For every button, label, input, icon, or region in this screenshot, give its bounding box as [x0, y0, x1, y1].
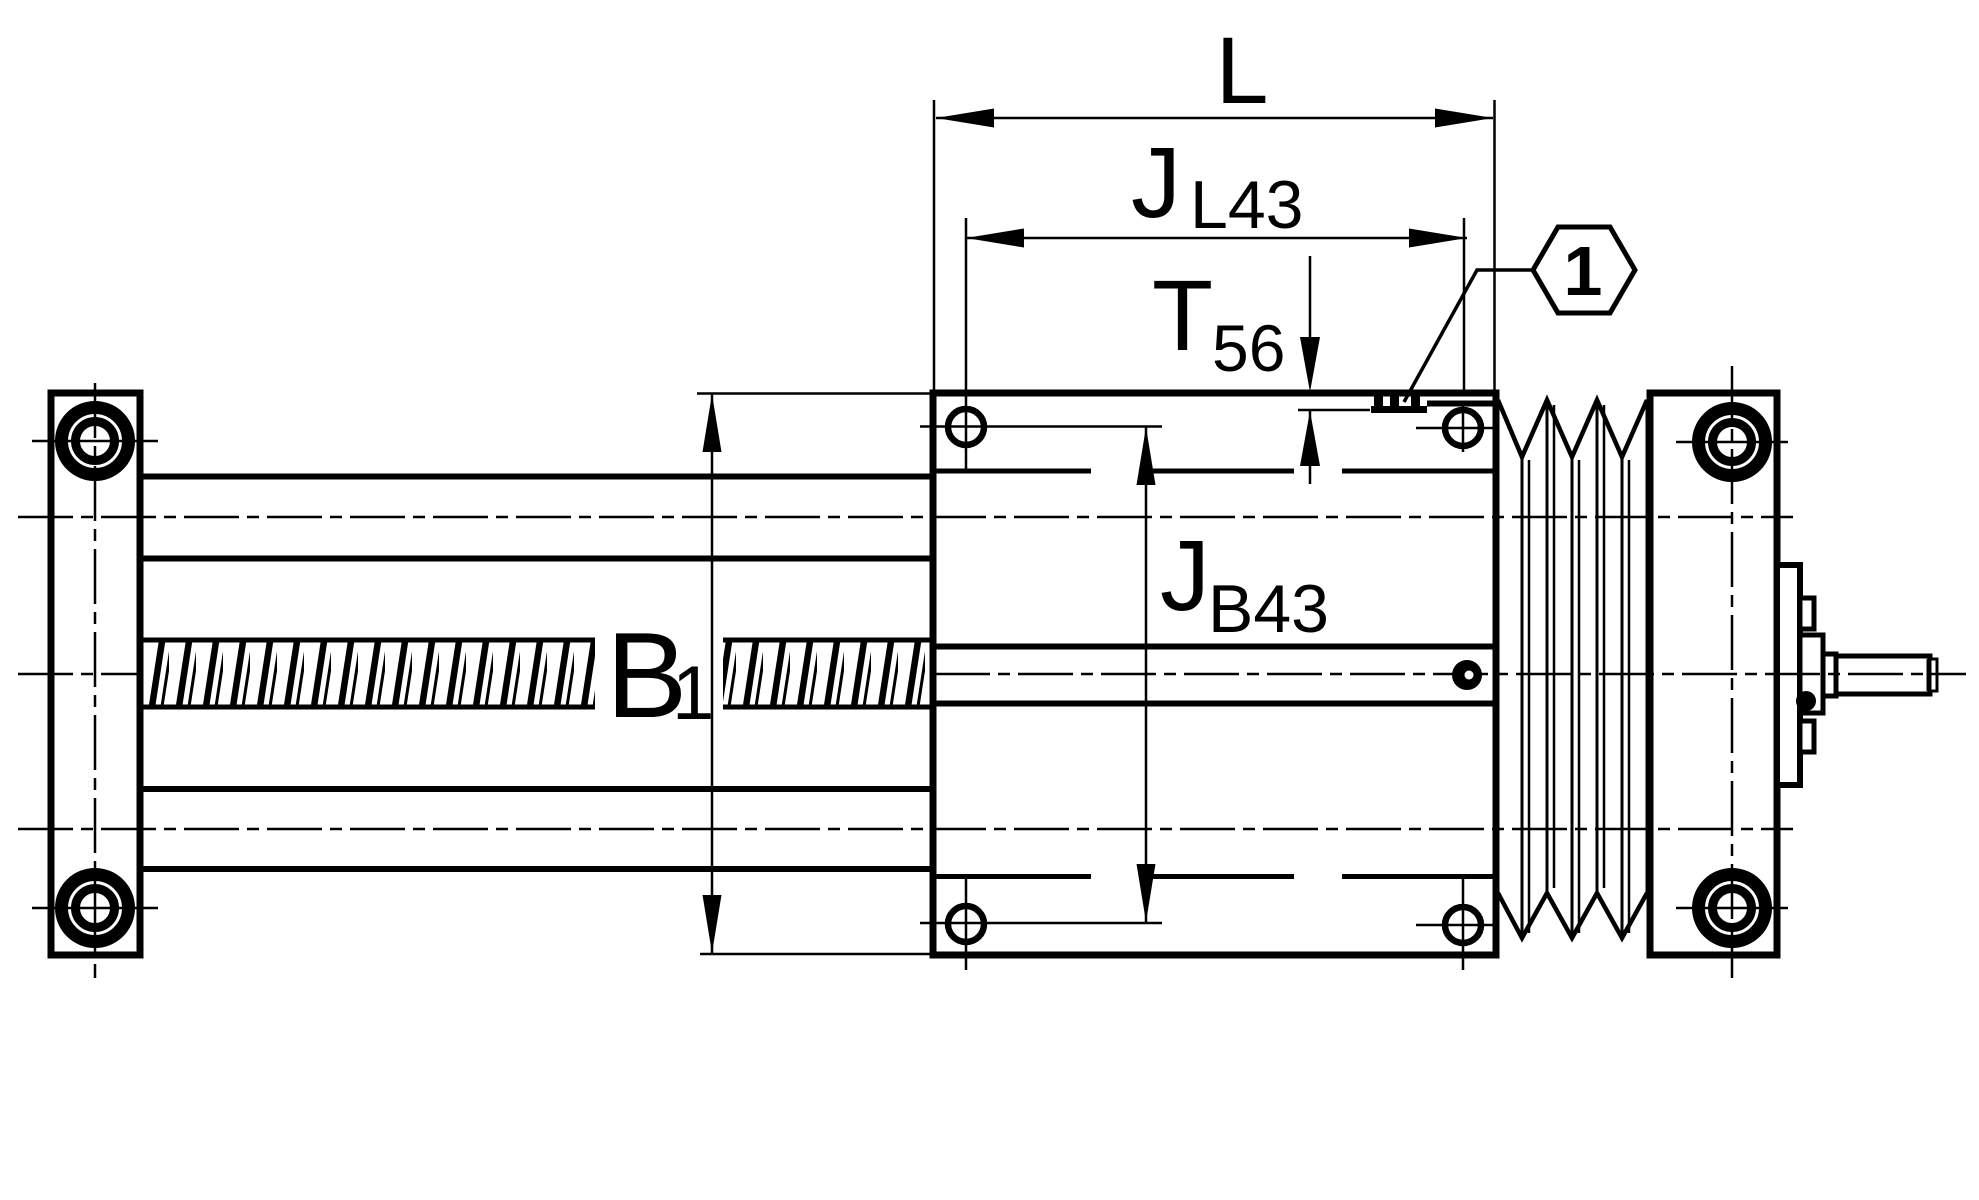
dim-T56-base: T — [1152, 260, 1213, 372]
flange-tab-bottom — [1800, 721, 1814, 752]
set-screw-dot — [1796, 691, 1816, 711]
thread-texture-right — [723, 640, 933, 707]
arrowhead-down — [1300, 337, 1320, 392]
sensor-item-1 — [1371, 394, 1427, 413]
callout-1: 1 — [1404, 227, 1635, 402]
dim-JB43-subscript: B43 — [1208, 571, 1329, 647]
actuator-dimension-drawing: L J L43 T 56 B 1 J B43 1 — [0, 0, 1979, 1200]
arrowhead-down — [703, 895, 722, 953]
flange-tab-top — [1800, 598, 1814, 629]
dim-JL43-base: J — [1131, 127, 1181, 239]
leader-line — [1404, 270, 1531, 402]
arrowhead-right — [1409, 229, 1467, 248]
screw-end-dot — [1452, 660, 1482, 690]
lead-screw-thread — [142, 640, 933, 707]
thread-texture-left — [142, 640, 595, 707]
dim-JB43-base: J — [1160, 520, 1210, 632]
technical-drawing-canvas: L J L43 T 56 B 1 J B43 1 — [0, 0, 1979, 1200]
callout-number: 1 — [1564, 232, 1603, 310]
arrowhead-right — [1435, 109, 1493, 128]
bellows — [1496, 396, 1650, 938]
dim-L-label: L — [1216, 18, 1269, 124]
arrowhead-left — [966, 229, 1024, 248]
dim-T56-subscript: 56 — [1212, 311, 1285, 385]
dim-B1-subscript: 1 — [672, 651, 714, 736]
arrowhead-up — [703, 394, 722, 452]
dim-JL43-subscript: L43 — [1190, 167, 1303, 243]
dimension-JL43: J L43 — [966, 127, 1467, 248]
arrowhead-left — [936, 109, 994, 128]
